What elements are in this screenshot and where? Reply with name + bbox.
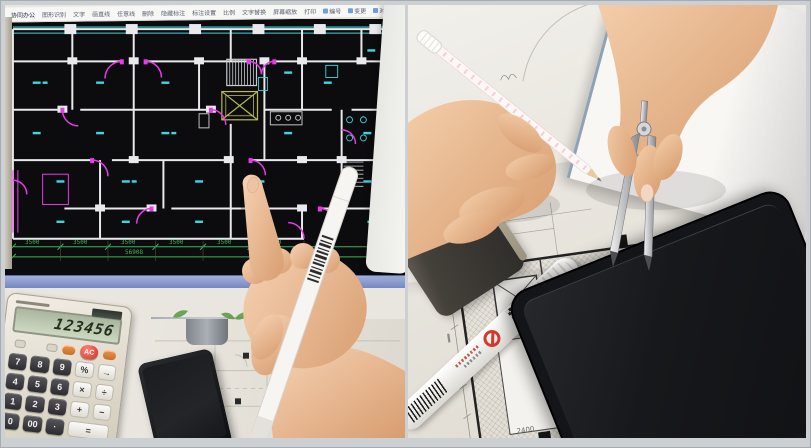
cad-menu-item-icon (373, 7, 378, 12)
cad-room-labels (33, 49, 376, 223)
calculator-key: 4 (408, 188, 422, 227)
calculator-keypad: 789%→456×÷123+−000·= (5, 353, 117, 438)
calculator-key: 2 (25, 395, 45, 413)
calculator-key: − (92, 403, 112, 421)
right-photo-blueprint: 9000 30700 2400 014 (408, 5, 806, 438)
cad-dimension-label: 3500 (169, 239, 183, 246)
cad-menu-item: 屏幕缩放 (273, 6, 297, 15)
cad-menu-item: 图形识别 (42, 9, 66, 18)
calculator-key: · (45, 418, 65, 436)
calculator-ac-key: AC (79, 344, 99, 360)
cad-wall-piers (57, 57, 366, 211)
cad-menu-item: 标注设置 (192, 7, 216, 16)
marker-no-logo-icon (480, 326, 504, 350)
cad-cyan-fixtures (258, 65, 366, 141)
cad-menu-item: 比例 (223, 7, 235, 16)
cad-menu-item-icon (323, 8, 328, 13)
taskbar-strip (5, 275, 405, 288)
cad-dimension-label: 3500 (121, 239, 135, 246)
cad-elevator (222, 92, 258, 120)
cad-dimension-label: 3500 (217, 239, 231, 246)
cad-door-arcs (13, 61, 356, 238)
cad-menu-item: 画直线 (92, 9, 110, 18)
photo-collage: 56908 350035003500350035007800 协同办公图形识别文… (0, 0, 811, 448)
cad-total-dimension: 56908 (125, 249, 143, 256)
calculator-orange-key (62, 345, 76, 356)
calculator-key: 3 (47, 398, 67, 416)
cad-dimension-label: 7800 (267, 239, 281, 246)
calculator-memory-key (14, 339, 26, 348)
calculator-key: × (72, 381, 92, 399)
monitor-left-bezel (5, 17, 12, 269)
calculator-key: = (67, 420, 109, 438)
smartphone-left-screen (142, 354, 227, 438)
cad-screen: 56908 350035003500350035007800 (5, 19, 405, 275)
cad-stairs (227, 59, 364, 186)
cad-menu-item: 隐藏标注 (161, 8, 185, 17)
cad-menu-item: 打印 (304, 6, 316, 15)
cad-dimension-label: 3500 (73, 239, 87, 246)
calculator-key: + (69, 401, 89, 419)
calculator-key: 9 (52, 358, 72, 376)
cad-menu-item: 文字替换 (242, 7, 266, 16)
cad-menu-item: 删除 (142, 8, 154, 17)
calculator-orange-key (103, 350, 117, 361)
calculator-key: 00 (23, 415, 43, 433)
desk-calculator: 123456 AC 789%→456×÷123+−000·= (5, 292, 133, 438)
cad-dimension-label: 3500 (25, 239, 39, 246)
calculator-key: 5 (27, 375, 47, 393)
calculator-key: → (97, 364, 117, 382)
cad-menu-item: 协同办公 (11, 10, 35, 19)
cad-menu-item: 文字 (73, 9, 85, 18)
cad-dimension-row: 56908 350035003500350035007800 (5, 237, 405, 263)
calculator-key: 1 (5, 392, 23, 410)
calculator-key: 0 (5, 412, 21, 430)
calculator-key: ÷ (94, 383, 114, 401)
cad-menu-item: 编号 (323, 6, 341, 15)
cad-menu-item-icon (348, 8, 353, 13)
cad-menu-item: 变更 (348, 6, 366, 15)
calculator-key: 6 (50, 378, 70, 396)
calculator-key: % (74, 361, 94, 379)
cad-pink-walls (13, 170, 68, 232)
calculator-display: 123456 (52, 315, 116, 340)
cad-menu-item: 任意线 (117, 8, 135, 17)
calculator-key: 7 (8, 353, 28, 371)
calculator-memory-key (46, 343, 58, 352)
left-photo-cad-monitor: 56908 350035003500350035007800 协同办公图形识别文… (5, 5, 405, 438)
calculator-key: 8 (30, 355, 50, 373)
calculator-key: 1 (408, 137, 441, 176)
calculator-key: 4 (5, 372, 25, 390)
